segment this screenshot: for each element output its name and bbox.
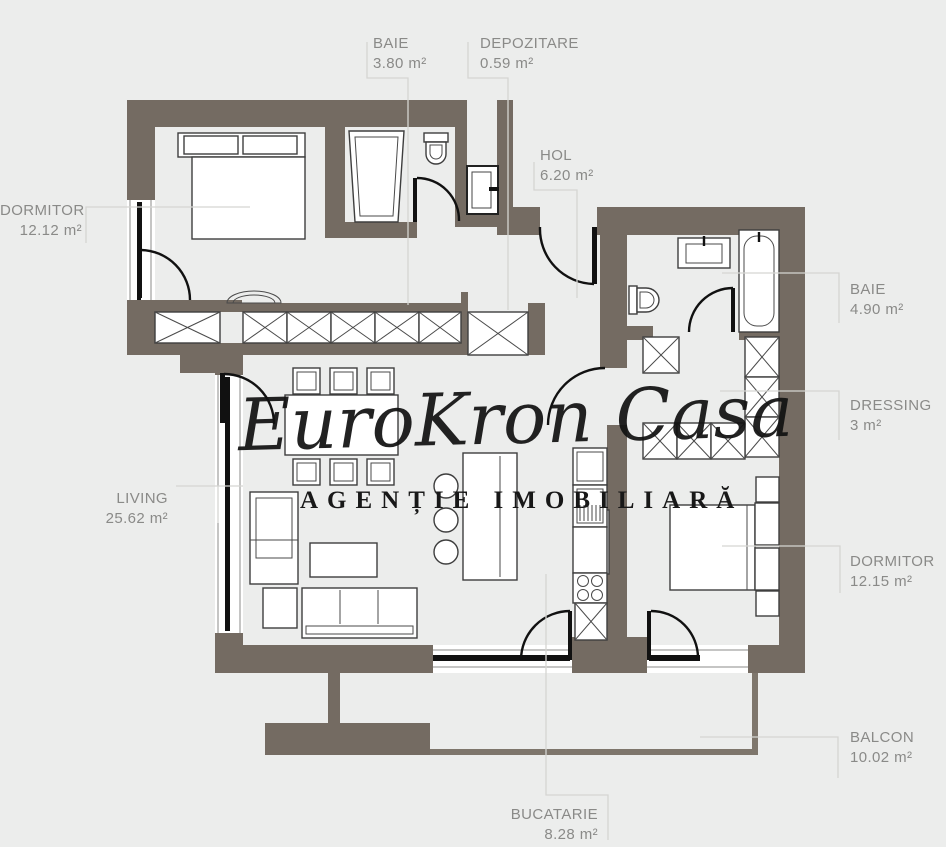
- label-hol: HOL 6.20 m²: [540, 146, 594, 186]
- floor-plan-drawing: [0, 0, 946, 847]
- room-area: 12.12 m²: [0, 221, 82, 241]
- label-balcon: BALCON 10.02 m²: [850, 728, 914, 768]
- label-depozitare: DEPOZITARE 0.59 m²: [480, 34, 579, 74]
- room-area: 12.15 m²: [850, 572, 935, 592]
- room-name: BALCON: [850, 728, 914, 748]
- room-area: 0.59 m²: [480, 54, 579, 74]
- depozitare-closet: [468, 312, 528, 355]
- floor-plan-page: EuroKron Casa AGENȚIE IMOBILIARĂ DORMITO…: [0, 0, 946, 847]
- window-balcony-door-living: [433, 645, 572, 673]
- room-area: 4.90 m²: [850, 300, 904, 320]
- door-dressing: [548, 368, 605, 425]
- window-living: [215, 375, 243, 633]
- label-baie2: BAIE 4.90 m²: [850, 280, 904, 320]
- door-hol: [540, 227, 597, 284]
- label-dormitor1: DORMITOR 12.12 m²: [0, 201, 82, 241]
- entrance-door: [467, 166, 499, 214]
- room-name: DORMITOR: [0, 201, 82, 221]
- room-name: LIVING: [68, 489, 168, 509]
- room-area: 10.02 m²: [850, 748, 914, 768]
- room-name: DRESSING: [850, 396, 932, 416]
- door-baie2: [689, 288, 735, 332]
- furniture-kitchen: [573, 448, 607, 640]
- room-name: HOL: [540, 146, 594, 166]
- furniture-baie1: [349, 131, 448, 222]
- label-baie1: BAIE 3.80 m²: [373, 34, 427, 74]
- furniture-bedroom1: [178, 133, 305, 303]
- label-dormitor2: DORMITOR 12.15 m²: [850, 552, 935, 592]
- room-name: DEPOZITARE: [480, 34, 579, 54]
- room-area: 6.20 m²: [540, 166, 594, 186]
- room-area: 25.62 m²: [68, 509, 168, 529]
- room-area: 3.80 m²: [373, 54, 427, 74]
- label-living: LIVING 25.62 m²: [68, 489, 168, 529]
- room-name: DORMITOR: [850, 552, 935, 572]
- room-name: BAIE: [373, 34, 427, 54]
- furniture-living: [250, 368, 609, 638]
- room-area: 8.28 m²: [478, 825, 598, 845]
- door-baie1: [413, 178, 459, 222]
- label-dressing: DRESSING 3 m²: [850, 396, 932, 436]
- furniture-baie2: [629, 230, 779, 332]
- wardrobes-dressing: [643, 337, 779, 459]
- label-bucatarie: BUCATARIE 8.28 m²: [478, 805, 598, 845]
- room-name: BAIE: [850, 280, 904, 300]
- room-name: BUCATARIE: [478, 805, 598, 825]
- room-area: 3 m²: [850, 416, 932, 436]
